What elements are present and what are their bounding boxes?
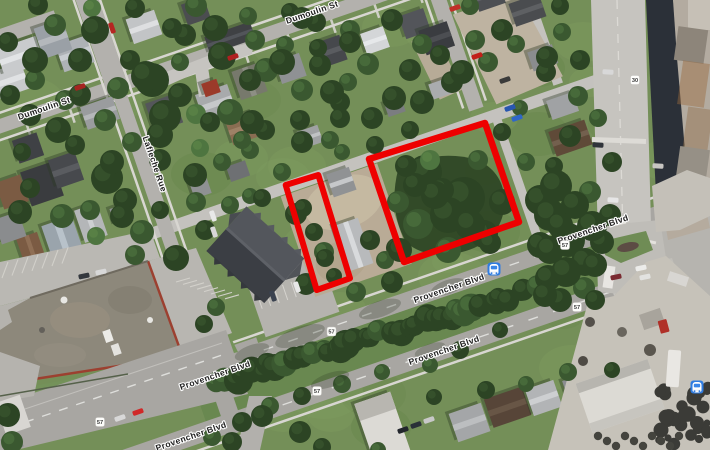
svg-text:57: 57 xyxy=(574,305,580,311)
svg-text:57: 57 xyxy=(562,243,568,249)
svg-text:57: 57 xyxy=(314,389,320,395)
svg-text:57: 57 xyxy=(328,330,334,336)
svg-text:30: 30 xyxy=(632,78,638,84)
svg-text:57: 57 xyxy=(97,420,103,426)
